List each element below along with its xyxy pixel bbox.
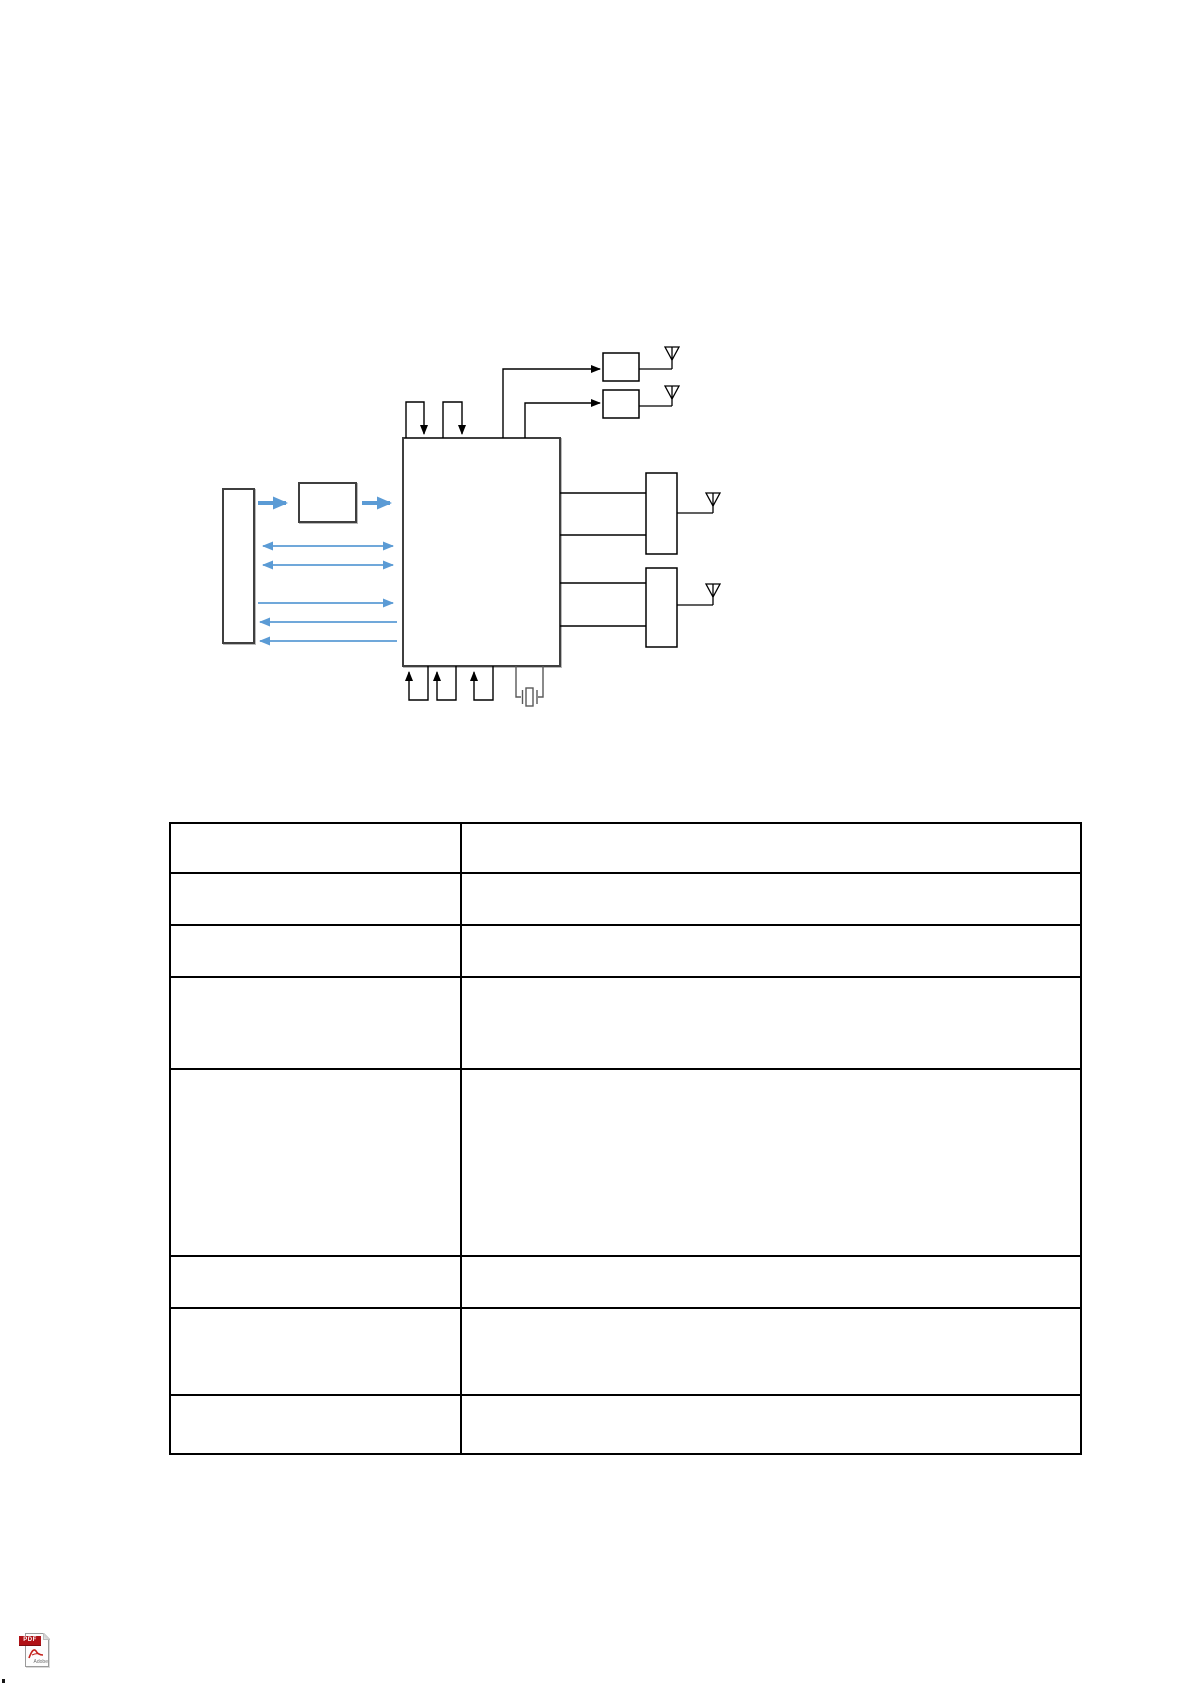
table-cell bbox=[462, 926, 1080, 978]
table-cell bbox=[462, 1309, 1080, 1396]
pdf-file-icon: PDF Adobe bbox=[19, 1632, 50, 1667]
left-connector-box bbox=[223, 489, 254, 643]
pdf-banner-label: PDF bbox=[19, 1636, 41, 1645]
document-page: PDF Adobe bbox=[0, 0, 1192, 1685]
antenna-icon-1 bbox=[639, 347, 679, 369]
table-cell bbox=[171, 1396, 462, 1453]
table-cell bbox=[462, 1396, 1080, 1453]
page-corner-mark bbox=[2, 1679, 5, 1683]
front-end-box-a bbox=[646, 473, 677, 554]
table-cell bbox=[171, 874, 462, 926]
table-cell bbox=[462, 824, 1080, 874]
table-cell bbox=[171, 1070, 462, 1257]
table-cell bbox=[462, 874, 1080, 926]
adobe-brand-label: Adobe bbox=[34, 1659, 48, 1665]
small-interface-box bbox=[299, 483, 356, 522]
table-cell bbox=[462, 1070, 1080, 1257]
top-pin-loop-2 bbox=[443, 402, 462, 438]
bottom-pin-loop-1 bbox=[409, 666, 428, 700]
wire-to-rf-box-2 bbox=[525, 403, 600, 438]
top-pin-loop-1 bbox=[406, 402, 424, 438]
front-end-box-b bbox=[646, 568, 677, 647]
table-cell bbox=[171, 824, 462, 874]
bottom-pin-loop-2 bbox=[437, 666, 456, 700]
acrobat-swoosh-icon bbox=[28, 1646, 44, 1659]
table-cell bbox=[171, 978, 462, 1070]
antenna-icon-3 bbox=[677, 493, 720, 513]
bottom-pin-loop-3 bbox=[474, 666, 493, 700]
pdf-fold-corner bbox=[43, 1633, 50, 1640]
antenna-icon-2 bbox=[639, 386, 679, 406]
table-cell bbox=[462, 978, 1080, 1070]
antenna-icon-4 bbox=[677, 584, 720, 605]
table-cell bbox=[462, 1257, 1080, 1309]
table-cell bbox=[171, 1309, 462, 1396]
spec-table bbox=[169, 822, 1082, 1455]
rf-switch-box-1 bbox=[603, 353, 639, 381]
table-cell bbox=[171, 926, 462, 978]
table-cell bbox=[171, 1257, 462, 1309]
rf-switch-box-2 bbox=[603, 390, 639, 418]
main-chip-box bbox=[403, 438, 560, 666]
crystal-icon bbox=[516, 666, 543, 706]
